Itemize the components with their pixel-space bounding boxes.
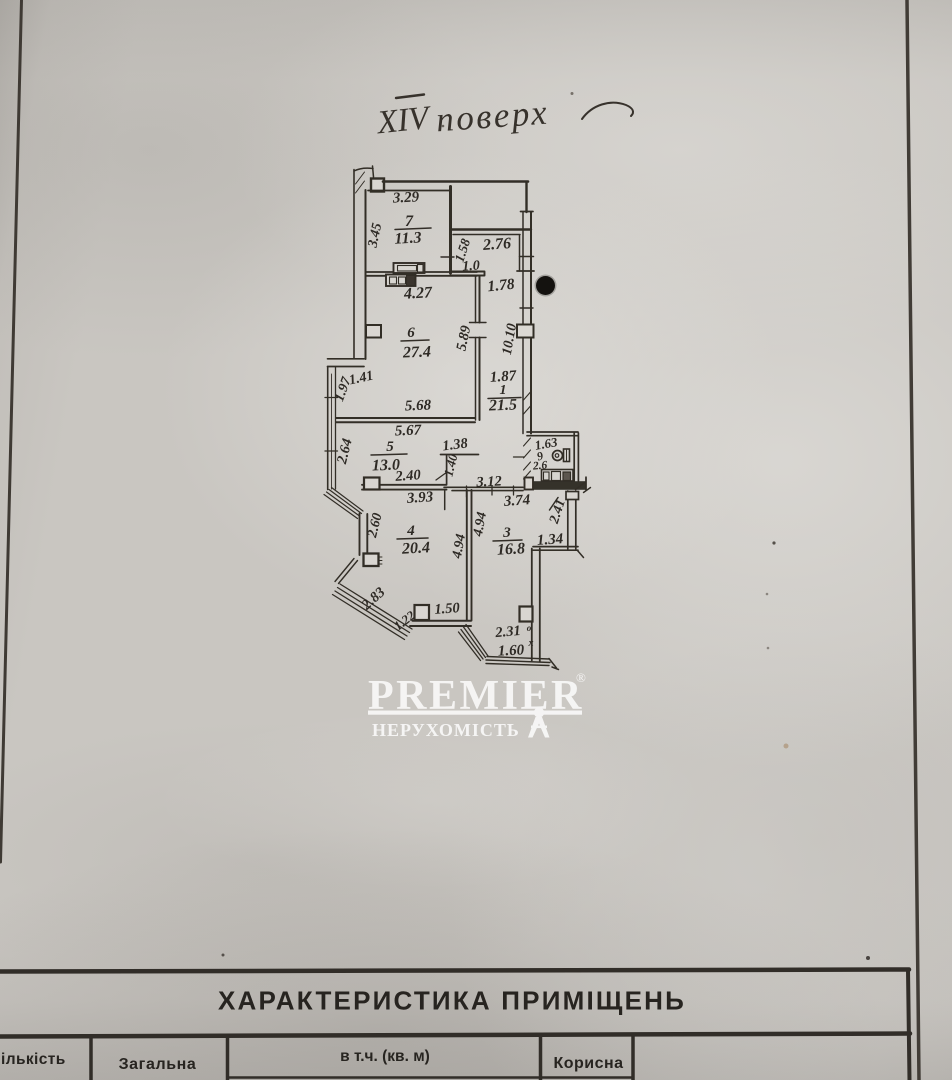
svg-text:o: o	[527, 623, 532, 633]
svg-text:1.50: 1.50	[434, 600, 460, 618]
svg-text:1: 1	[500, 383, 507, 398]
svg-text:в т.ч. (кв. м): в т.ч. (кв. м)	[340, 1048, 430, 1065]
svg-text:5.68: 5.68	[405, 398, 432, 415]
svg-text:2.41: 2.41	[547, 497, 569, 526]
svg-text:поверх: поверх	[435, 93, 551, 140]
svg-text:x: x	[528, 638, 534, 649]
svg-text:6: 6	[407, 325, 415, 341]
svg-text:2.83: 2.83	[358, 584, 388, 614]
svg-text:7: 7	[405, 213, 414, 230]
svg-text:21.5: 21.5	[488, 397, 518, 415]
svg-text:3: 3	[502, 525, 511, 541]
svg-text:НЕРУХОМІСТЬ: НЕРУХОМІСТЬ	[372, 720, 520, 740]
svg-text:4.27: 4.27	[403, 284, 434, 303]
svg-text:16.8: 16.8	[497, 540, 526, 558]
svg-text:1.38: 1.38	[442, 435, 470, 454]
svg-text:3.12: 3.12	[475, 473, 502, 490]
svg-text:27.4: 27.4	[402, 344, 432, 362]
svg-text:Корисна: Корисна	[553, 1055, 623, 1072]
svg-text:5.67: 5.67	[395, 423, 422, 440]
svg-text:1.0: 1.0	[462, 259, 480, 275]
svg-text:5.89: 5.89	[454, 324, 475, 352]
svg-text:2.64: 2.64	[334, 437, 356, 466]
svg-text:3.29: 3.29	[392, 189, 421, 206]
svg-text:10.10: 10.10	[500, 322, 520, 356]
svg-text:2.76: 2.76	[481, 235, 511, 254]
svg-text:1.78: 1.78	[487, 276, 516, 296]
svg-text:3.45: 3.45	[365, 222, 385, 250]
svg-text:2.31: 2.31	[494, 623, 522, 641]
svg-text:®: ®	[576, 670, 586, 685]
svg-text:5: 5	[386, 439, 394, 455]
svg-text:1.40: 1.40	[440, 452, 460, 478]
svg-text:Загальна: Загальна	[119, 1056, 197, 1073]
svg-text:1.60: 1.60	[498, 642, 526, 659]
svg-text:4: 4	[406, 523, 415, 539]
svg-text:XIV: XIV	[374, 100, 435, 142]
svg-text:20.4: 20.4	[401, 539, 431, 557]
svg-text:2.6: 2.6	[531, 459, 548, 472]
svg-text:ХАРАКТЕРИСТИКА ПРИМІЩЕНЬ: ХАРАКТЕРИСТИКА ПРИМІЩЕНЬ	[218, 986, 686, 1016]
svg-text:11.3: 11.3	[394, 229, 422, 247]
svg-text:3.93: 3.93	[405, 489, 434, 507]
svg-text:1.34: 1.34	[536, 531, 564, 549]
svg-text:ількість: ількість	[1, 1051, 66, 1068]
svg-text:4.94: 4.94	[471, 511, 490, 539]
svg-text:2.40: 2.40	[394, 467, 421, 485]
svg-text:3.74: 3.74	[502, 492, 531, 510]
